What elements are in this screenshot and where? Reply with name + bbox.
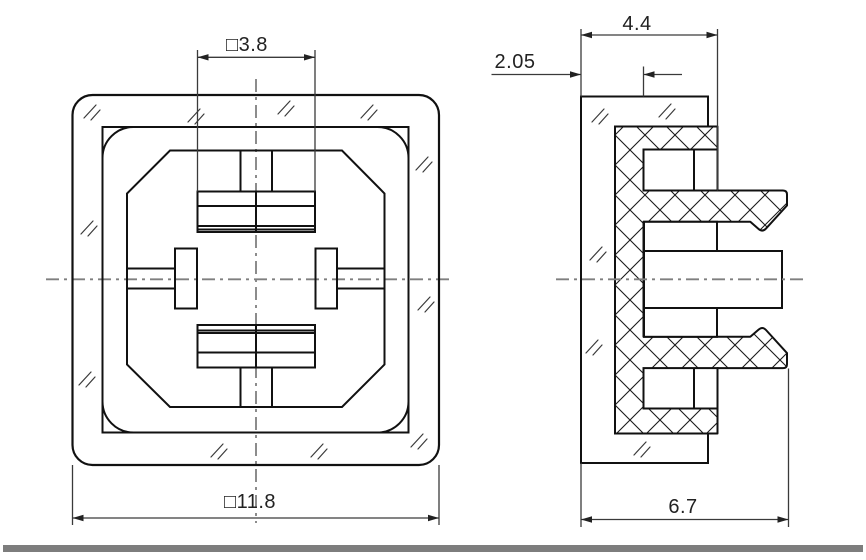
- side-section-view: 4.4 2.05 6.7: [492, 13, 806, 527]
- glass-hatch-mark: [81, 221, 97, 236]
- top-contact-block: [198, 192, 316, 233]
- arrowhead: [198, 54, 209, 60]
- glass-hatch-mark: [416, 157, 432, 172]
- glass-hatch-mark: [79, 372, 95, 387]
- technical-drawing-canvas: □3.8 □11.8: [0, 0, 866, 560]
- glass-hatch-mark: [84, 105, 100, 120]
- top-recess-box: [644, 150, 718, 191]
- glass-hatch-mark: [411, 434, 427, 449]
- arrowhead: [581, 32, 592, 38]
- glass-hatch-mark: [311, 444, 327, 459]
- dim-label-slot-width: □3.8: [226, 34, 268, 56]
- inner-corner-fillet: [378, 402, 409, 433]
- arrowhead: [428, 515, 439, 521]
- arrowhead: [644, 71, 655, 77]
- front-view: □3.8 □11.8: [46, 34, 449, 525]
- inner-corner-fillet: [378, 127, 409, 158]
- lower-contact-seat: [644, 308, 717, 337]
- glass-hatch-mark: [361, 105, 377, 120]
- arrowhead: [778, 516, 789, 522]
- inner-corner-fillet: [103, 127, 134, 158]
- glass-hatch-mark: [211, 444, 227, 459]
- arrowhead: [707, 32, 718, 38]
- arrowhead: [581, 516, 592, 522]
- glass-hatch-mark: [418, 297, 434, 312]
- glass-hatch-mark: [278, 101, 294, 116]
- dim-label-panel-offset: 2.05: [495, 51, 536, 73]
- upper-contact-seat: [644, 222, 717, 251]
- dim-label-flange-depth: 4.4: [622, 13, 651, 35]
- bottom-contact-block: [198, 325, 316, 368]
- footer-divider-bar: [3, 545, 863, 552]
- dim-panel-offset: 2.05: [492, 51, 683, 97]
- glass-hatch-mark: [188, 109, 204, 124]
- arrowhead: [73, 515, 84, 521]
- bottom-recess-box: [644, 368, 718, 408]
- dim-label-body-width: □11.8: [224, 491, 276, 513]
- arrowhead: [570, 71, 581, 77]
- inner-corner-fillet: [103, 402, 134, 433]
- arrowhead: [304, 54, 315, 60]
- dim-label-total-depth: 6.7: [668, 496, 697, 518]
